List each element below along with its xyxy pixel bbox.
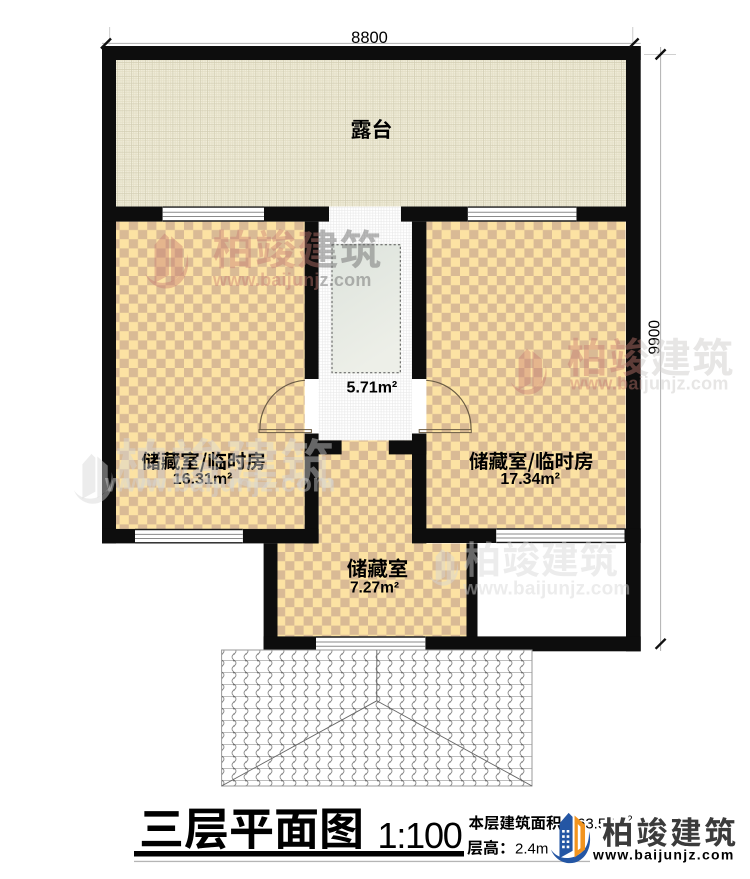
svg-text:www.baijunjz.com: www.baijunjz.com [592, 847, 735, 863]
svg-text:5.71m²: 5.71m² [347, 380, 398, 397]
svg-text:www.baijunjz.com: www.baijunjz.com [104, 468, 336, 498]
svg-text:2.4m: 2.4m [515, 841, 548, 858]
svg-text:7.27m²: 7.27m² [350, 580, 399, 597]
svg-text:www.baijunjz.com: www.baijunjz.com [462, 579, 630, 600]
svg-text:8800: 8800 [351, 29, 388, 47]
svg-text:17.34m²: 17.34m² [500, 471, 560, 488]
svg-text:1:100: 1:100 [378, 815, 462, 856]
